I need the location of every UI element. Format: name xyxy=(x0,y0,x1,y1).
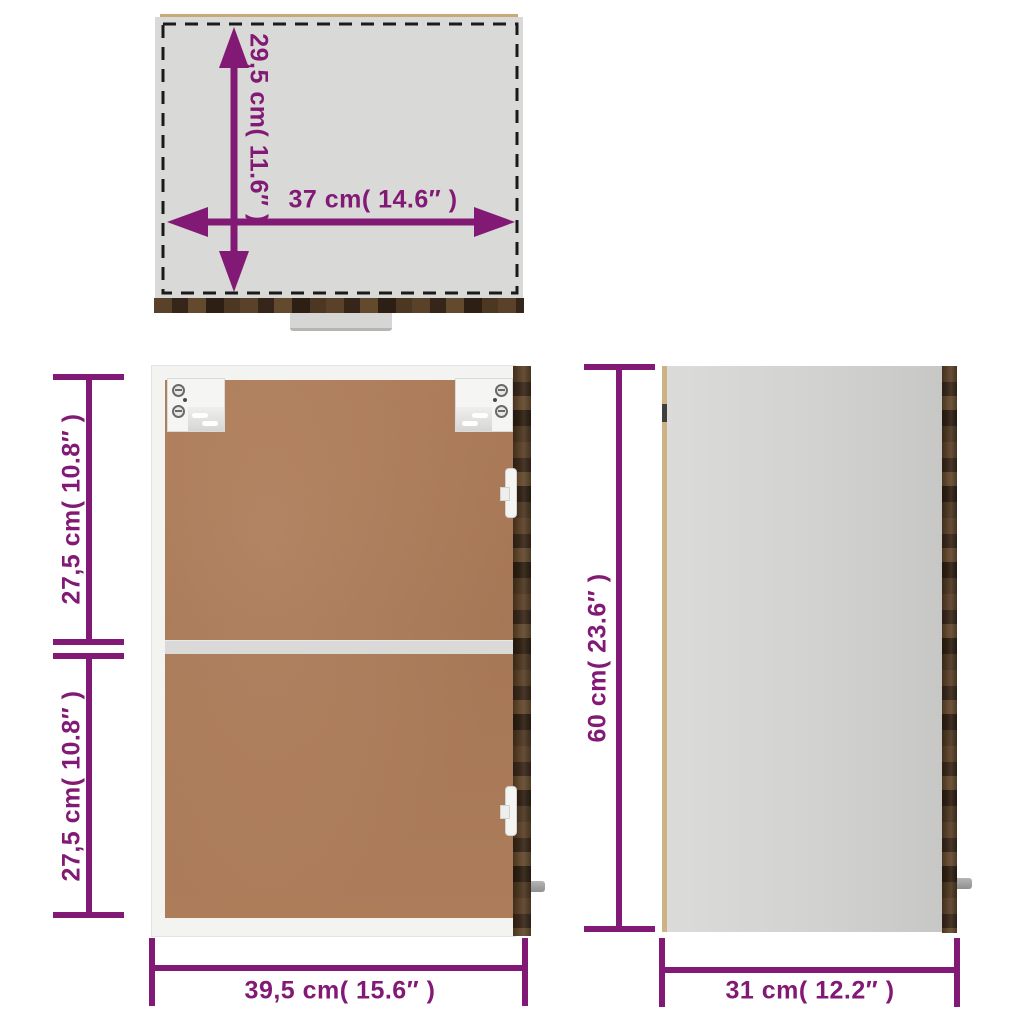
top-view-handle xyxy=(290,313,392,331)
top-view-door-edge xyxy=(154,298,524,313)
bracket-slot xyxy=(192,413,208,418)
front-view-door-edge xyxy=(513,366,531,936)
side-view-door-knob xyxy=(957,878,972,889)
bracket-slot xyxy=(462,421,478,426)
front-upper-compartment-label: 27,5 cm( 10.8″ ) xyxy=(58,414,87,605)
product-dimension-diagram: 29,5 cm( 11.6″ ) 37 cm( 14.6″ ) 27,5 cm(… xyxy=(0,0,1024,1024)
screw-icon xyxy=(495,405,508,418)
front-width-label: 39,5 cm( 15.6″ ) xyxy=(245,977,436,1006)
screw-icon xyxy=(172,405,185,418)
top-view-depth-label: 29,5 cm( 11.6″ ) xyxy=(244,33,273,223)
screw-icon xyxy=(495,384,508,397)
front-view-shelf xyxy=(165,640,513,654)
screw-hole xyxy=(183,398,187,402)
bracket-slot xyxy=(472,413,488,418)
side-view-panel xyxy=(667,366,942,932)
top-view-dashed-outline xyxy=(163,24,517,293)
side-depth-label: 31 cm( 12.2″ ) xyxy=(725,977,894,1006)
wall-mount-bracket-left xyxy=(167,378,225,432)
screw-icon xyxy=(172,384,185,397)
bracket-rail xyxy=(456,407,492,431)
front-view-door-knob xyxy=(531,881,545,892)
side-height-label: 60 cm( 23.6″ ) xyxy=(584,573,613,742)
bracket-slot xyxy=(202,421,218,426)
side-view-door-edge xyxy=(942,366,957,933)
wall-mount-bracket-right xyxy=(455,378,513,432)
screw-hole xyxy=(493,398,497,402)
side-view-hinge-mark xyxy=(662,404,667,422)
hinge-bottom xyxy=(505,786,517,836)
top-view-width-label: 37 cm( 14.6″ ) xyxy=(288,186,457,215)
front-lower-compartment-label: 27,5 cm( 10.8″ ) xyxy=(58,691,87,882)
hinge-top xyxy=(505,468,517,518)
bracket-rail xyxy=(188,407,224,431)
